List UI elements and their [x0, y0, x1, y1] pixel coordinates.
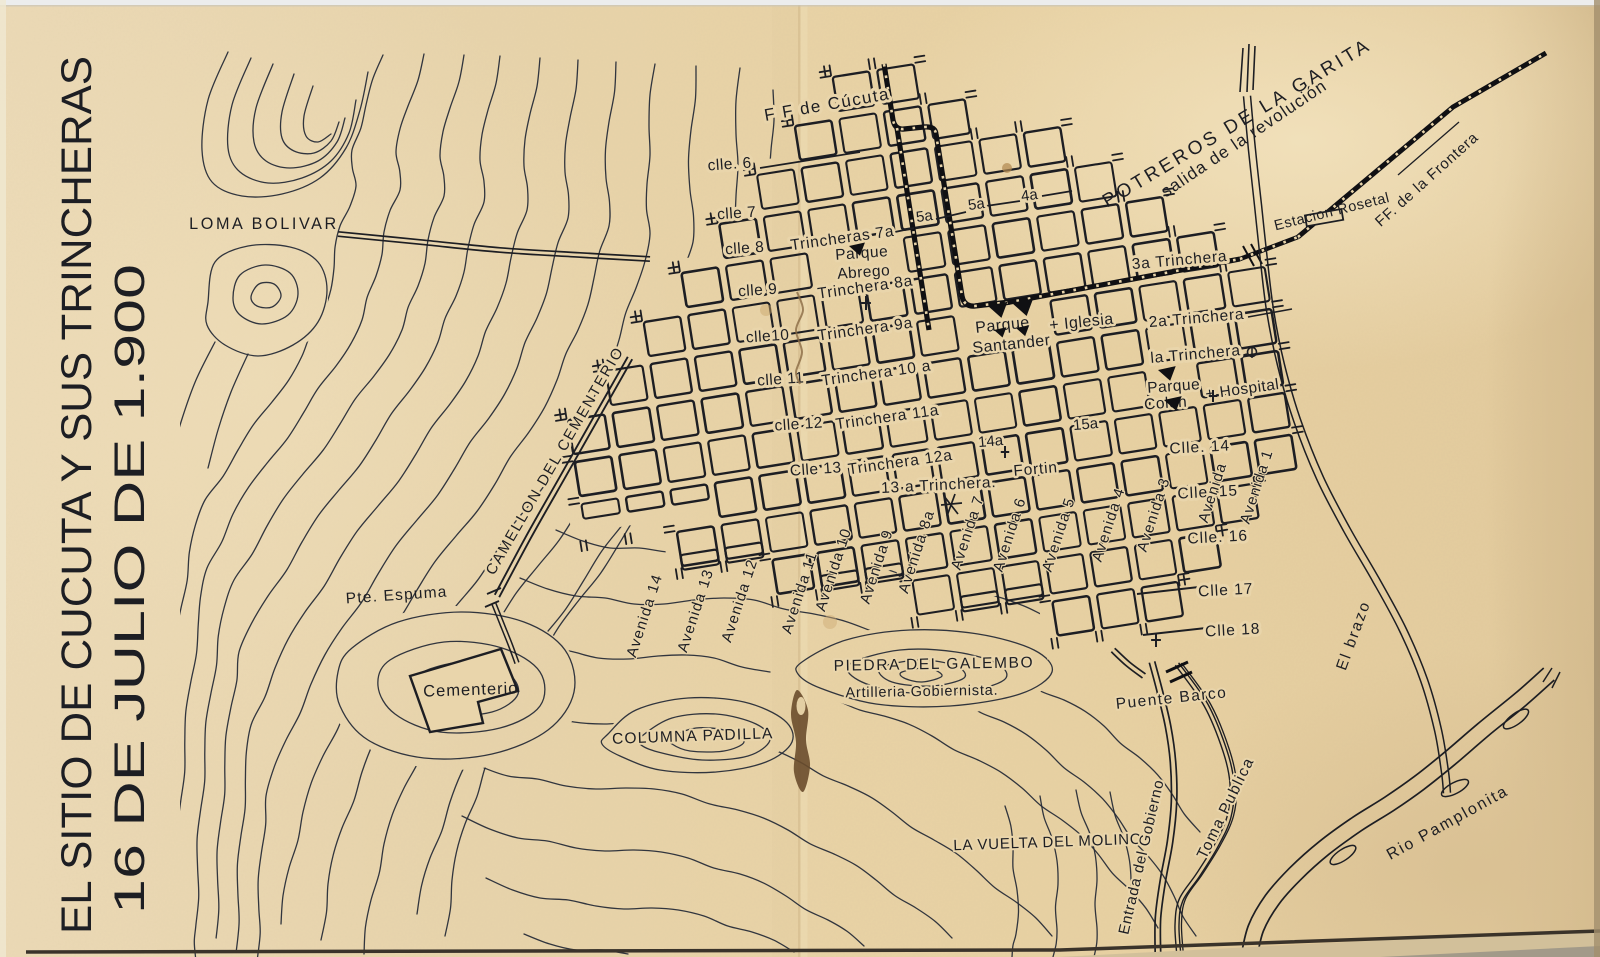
svg-text:clle 9: clle 9: [738, 281, 778, 301]
svg-text:14a: 14a: [977, 432, 1004, 451]
svg-text:Clle 13: Clle 13: [789, 459, 842, 480]
svg-text:5a: 5a: [915, 207, 935, 226]
svg-text:Clle. 14: Clle. 14: [1169, 437, 1230, 457]
svg-text:clle10: clle10: [745, 327, 790, 347]
svg-text:Clle 17: Clle 17: [1198, 581, 1254, 601]
svg-text:clle 7: clle 7: [717, 204, 757, 224]
svg-text:Cementerio: Cementerio: [423, 679, 519, 700]
svg-text:Clle 18: Clle 18: [1205, 621, 1261, 641]
svg-text:5a: 5a: [967, 195, 987, 214]
svg-text:16 DE JULIO DE 1.900: 16 DE JULIO DE 1.900: [106, 264, 154, 914]
svg-text:clle. 6: clle. 6: [707, 154, 752, 174]
svg-text:clle 8: clle 8: [725, 239, 765, 259]
svg-text:4a: 4a: [1020, 186, 1040, 205]
svg-text:clle 12: clle 12: [774, 414, 823, 434]
svg-text:Clle. 16: Clle. 16: [1187, 527, 1248, 547]
svg-text:PIEDRA DEL GALEMBO: PIEDRA DEL GALEMBO: [834, 654, 1035, 674]
svg-text:LOMA BOLIVAR: LOMA BOLIVAR: [189, 215, 339, 233]
svg-text:EL SITIO DE CUCUTA Y SUS TRINC: EL SITIO DE CUCUTA Y SUS TRINCHERAS: [53, 56, 101, 934]
svg-text:Artilleria Gobiernista.: Artilleria Gobiernista.: [845, 683, 998, 702]
svg-text:15a: 15a: [1072, 415, 1099, 434]
